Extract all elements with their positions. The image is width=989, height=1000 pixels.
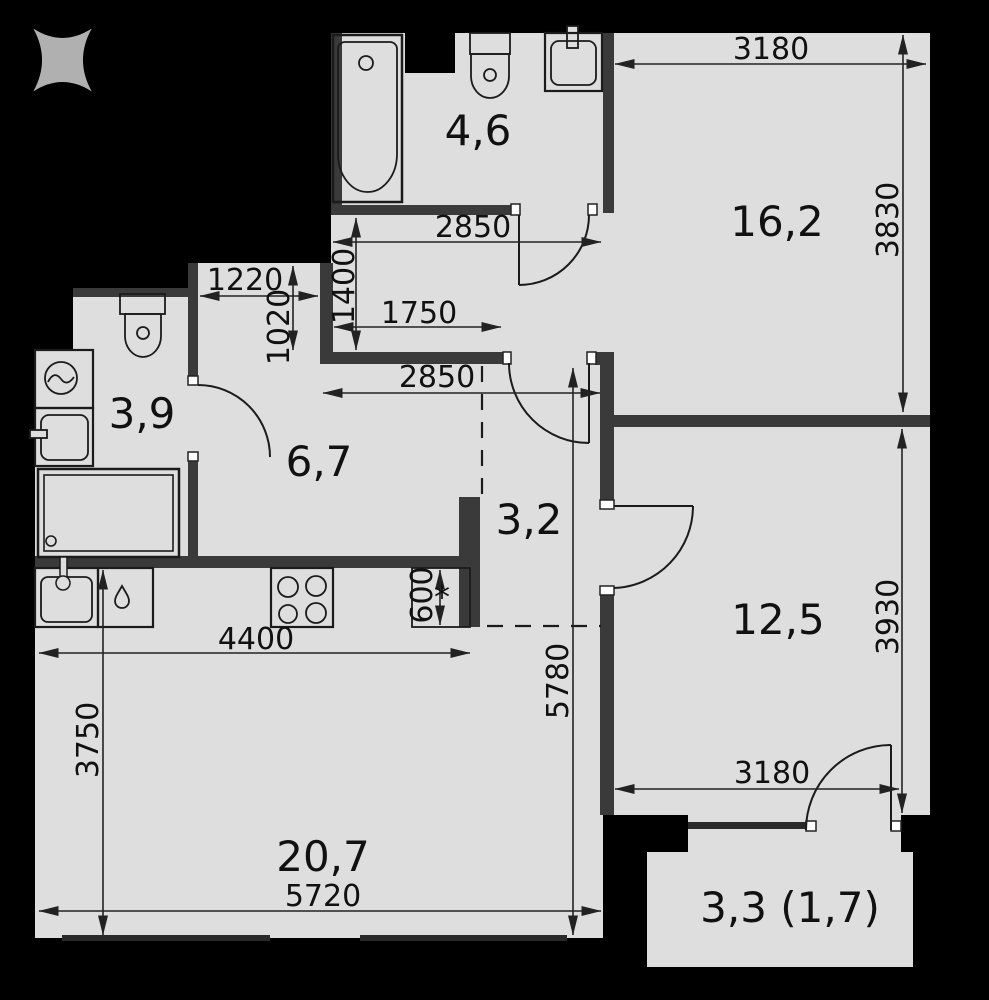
dimension-label: 1400: [330, 248, 360, 324]
floor-plan-page: 4,6 16,2 3,9 6,7 3,2 12,5 20,7 3,3 (1,7)…: [0, 0, 989, 1000]
dimension-label: 2850: [435, 213, 511, 243]
dimension-label: 3180: [734, 759, 810, 789]
room-area-label: 3,2: [496, 499, 563, 541]
dimension-label: 5780: [544, 643, 574, 719]
room-area-label: 20,7: [276, 836, 370, 878]
room-area-label: 3,3 (1,7): [700, 887, 880, 929]
room-area-label: 12,5: [731, 599, 825, 641]
dimension-label: 2850: [399, 363, 475, 393]
dimension-label: 3180: [733, 35, 809, 65]
dimension-label: 3930: [874, 579, 904, 655]
dimension-label: 3830: [874, 182, 904, 258]
dimension-label: 1750: [381, 299, 457, 329]
dimension-label: 3750: [74, 702, 104, 778]
dimension-footnote-mark: *: [434, 581, 450, 613]
dimension-label: 4400: [218, 625, 294, 655]
room-area-label: 3,9: [109, 393, 176, 435]
room-area-label: 6,7: [286, 441, 353, 483]
room-area-label: 16,2: [730, 201, 824, 243]
room-area-label: 4,6: [445, 110, 512, 152]
dimension-label: 5720: [285, 882, 361, 912]
dimension-label: 1020: [265, 289, 295, 365]
x-star-logo-icon: [33, 29, 92, 92]
